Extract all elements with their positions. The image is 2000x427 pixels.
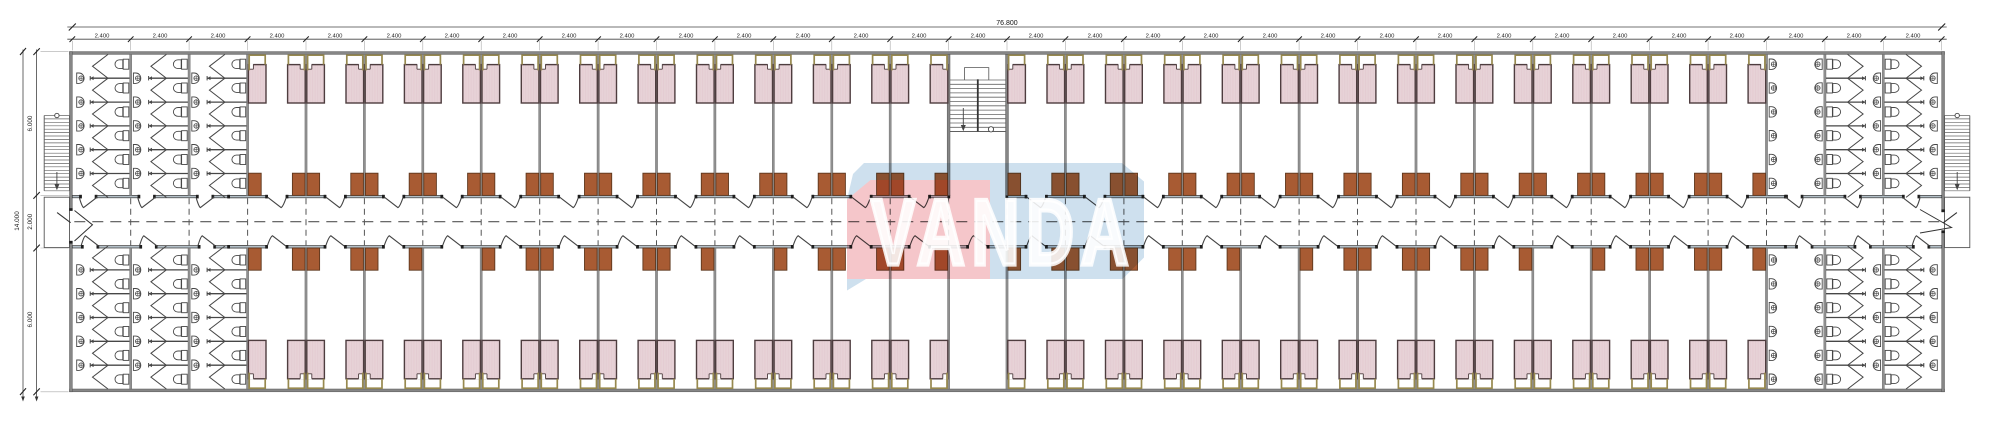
- svg-text:2.400: 2.400: [1613, 34, 1628, 40]
- svg-text:2.400: 2.400: [912, 34, 927, 40]
- svg-text:2.400: 2.400: [1847, 34, 1862, 40]
- svg-text:76.800: 76.800: [996, 20, 1018, 27]
- svg-text:2.400: 2.400: [328, 34, 343, 40]
- svg-text:2.400: 2.400: [679, 34, 694, 40]
- svg-text:2.400: 2.400: [1029, 34, 1044, 40]
- svg-text:2.400: 2.400: [562, 34, 577, 40]
- svg-text:2.400: 2.400: [971, 34, 986, 40]
- svg-text:2.400: 2.400: [1438, 34, 1453, 40]
- svg-text:2.400: 2.400: [1672, 34, 1687, 40]
- svg-text:2.400: 2.400: [1263, 34, 1278, 40]
- svg-text:2.000: 2.000: [27, 213, 34, 229]
- svg-text:2.400: 2.400: [211, 34, 226, 40]
- svg-text:2.400: 2.400: [796, 34, 811, 40]
- svg-text:2.400: 2.400: [153, 34, 168, 40]
- svg-text:14.000: 14.000: [14, 211, 21, 231]
- svg-text:2.400: 2.400: [270, 34, 285, 40]
- svg-text:2.400: 2.400: [854, 34, 869, 40]
- svg-text:2.400: 2.400: [1321, 34, 1336, 40]
- svg-text:2.400: 2.400: [1204, 34, 1219, 40]
- svg-text:2.400: 2.400: [1789, 34, 1804, 40]
- svg-text:2.400: 2.400: [1906, 34, 1921, 40]
- svg-text:2.400: 2.400: [1730, 34, 1745, 40]
- svg-text:2.400: 2.400: [1555, 34, 1570, 40]
- svg-text:2.400: 2.400: [387, 34, 402, 40]
- svg-text:2.400: 2.400: [503, 34, 518, 40]
- svg-text:2.400: 2.400: [737, 34, 752, 40]
- svg-text:2.400: 2.400: [1146, 34, 1161, 40]
- svg-text:VANDA: VANDA: [871, 180, 1135, 285]
- svg-text:2.400: 2.400: [1380, 34, 1395, 40]
- svg-text:2.400: 2.400: [1497, 34, 1512, 40]
- svg-text:6.000: 6.000: [27, 115, 34, 131]
- svg-text:2.400: 2.400: [620, 34, 635, 40]
- svg-text:6.000: 6.000: [27, 311, 34, 327]
- svg-text:2.400: 2.400: [95, 34, 110, 40]
- svg-text:2.400: 2.400: [1088, 34, 1103, 40]
- svg-text:2.400: 2.400: [445, 34, 460, 40]
